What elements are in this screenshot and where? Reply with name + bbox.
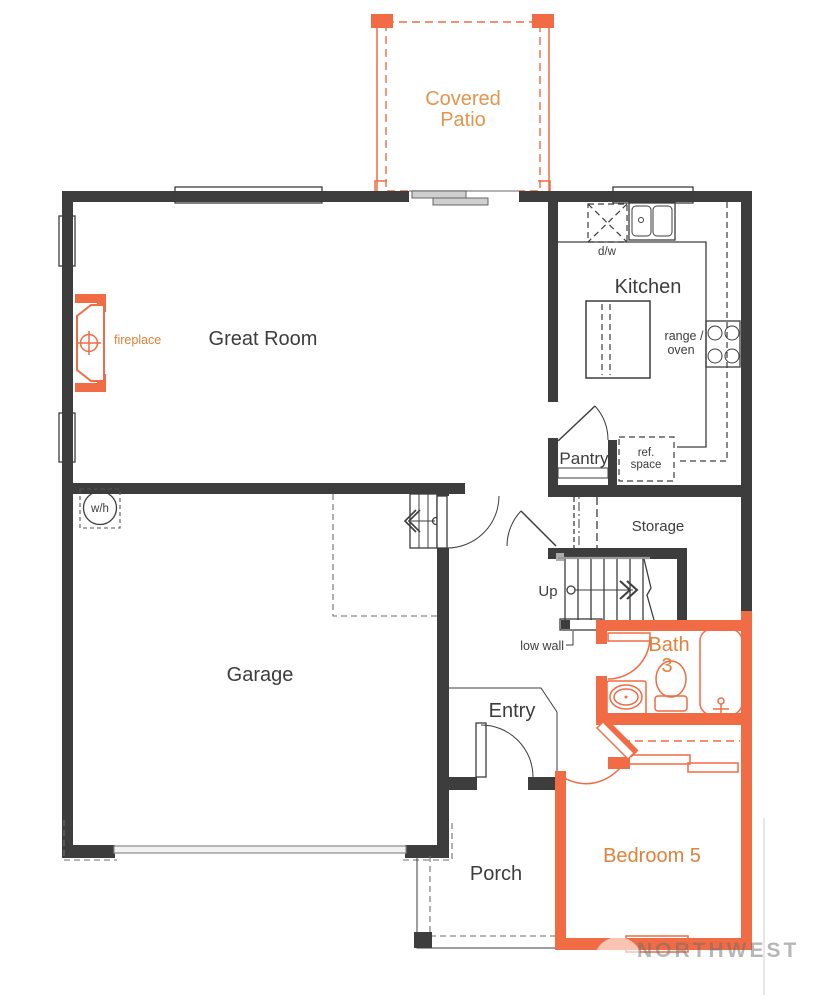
bath-3: Bath 3 bbox=[596, 611, 752, 950]
closet-slider-left bbox=[626, 755, 690, 764]
storage-label: Storage bbox=[632, 518, 685, 535]
bath-door bbox=[608, 633, 650, 679]
water-heater-label: w/h bbox=[90, 503, 109, 515]
ref-space-label-2: space bbox=[631, 459, 662, 471]
storage: Storage bbox=[507, 497, 684, 548]
covered-patio-label-2: Patio bbox=[440, 109, 486, 131]
bath-sink-fixture bbox=[607, 681, 646, 714]
front-door bbox=[476, 723, 533, 791]
porch-label: Porch bbox=[470, 863, 522, 885]
ref-space: ref. space bbox=[619, 437, 674, 481]
up-label: Up bbox=[538, 583, 557, 600]
floor-plan-drawing: Covered Patio bbox=[0, 0, 813, 995]
watermark-text: NORTHWEST bbox=[637, 939, 799, 962]
bath-label: Bath bbox=[648, 634, 689, 656]
bedroom-door bbox=[559, 722, 634, 784]
bedroom-closet bbox=[559, 721, 740, 784]
water-heater: w/h bbox=[80, 489, 120, 528]
pantry-label: Pantry bbox=[559, 449, 609, 468]
pantry-door-swing bbox=[595, 406, 608, 440]
fireplace-label: fireplace bbox=[114, 333, 161, 347]
kitchen: d/w Kitchen range / oven bbox=[558, 202, 740, 461]
floor-plan: Covered Patio bbox=[0, 0, 813, 995]
garage-ceiling-dashed bbox=[333, 494, 437, 616]
bath-label-2: 3 bbox=[661, 655, 672, 677]
porch-post bbox=[414, 932, 432, 948]
kitchen-sink bbox=[629, 202, 675, 240]
pantry-shelf bbox=[558, 468, 608, 478]
kitchen-label: Kitchen bbox=[615, 276, 682, 298]
kitchen-island bbox=[586, 301, 650, 378]
garage-entry-door bbox=[437, 496, 499, 548]
range-oven-label-2: oven bbox=[667, 343, 694, 357]
stairs: Up bbox=[538, 553, 654, 620]
closet-slider-right bbox=[688, 763, 738, 772]
storage-door-leaf bbox=[521, 511, 556, 546]
front-door-swing bbox=[481, 725, 533, 777]
pantry: Pantry bbox=[558, 406, 609, 478]
storage-door bbox=[507, 511, 556, 546]
range-oven: range / oven bbox=[665, 321, 740, 367]
garage-door bbox=[114, 846, 406, 853]
storage-door-swing bbox=[507, 511, 521, 546]
fireplace: fireplace bbox=[75, 294, 161, 392]
stair-break-line bbox=[644, 559, 654, 620]
great-room-label: Great Room bbox=[209, 328, 318, 350]
dishwasher-label: d/w bbox=[598, 246, 617, 258]
range-oven-label: range / bbox=[665, 329, 704, 343]
watermark-circle bbox=[594, 937, 642, 985]
garage-steps bbox=[405, 494, 440, 548]
patio-post-left bbox=[371, 14, 393, 28]
entry-label: Entry bbox=[489, 700, 536, 722]
covered-patio: Covered Patio bbox=[371, 14, 554, 191]
garage: w/h Garage bbox=[64, 489, 499, 860]
patio-post-right bbox=[532, 14, 554, 28]
low-wall: low wall bbox=[520, 619, 602, 653]
bath-door-leaf bbox=[608, 633, 650, 641]
bedroom-label: Bedroom 5 bbox=[603, 845, 701, 867]
ref-space-label: ref. bbox=[638, 447, 655, 459]
garage-label: Garage bbox=[227, 664, 294, 686]
bath-door-swing bbox=[608, 637, 650, 679]
entry: Entry bbox=[449, 688, 557, 791]
bathtub-fixture bbox=[700, 629, 742, 715]
garage-entry-door-swing bbox=[447, 496, 499, 548]
front-door-leaf bbox=[476, 723, 486, 777]
sliding-glass-door bbox=[409, 189, 519, 205]
porch: Porch bbox=[414, 853, 557, 948]
pantry-door-leaf bbox=[558, 406, 595, 441]
low-wall-label: low wall bbox=[520, 639, 564, 653]
windows bbox=[59, 187, 693, 462]
bedroom-5: Bedroom 5 bbox=[555, 771, 752, 952]
dishwasher: d/w bbox=[588, 204, 627, 258]
covered-patio-label: Covered bbox=[425, 88, 501, 110]
